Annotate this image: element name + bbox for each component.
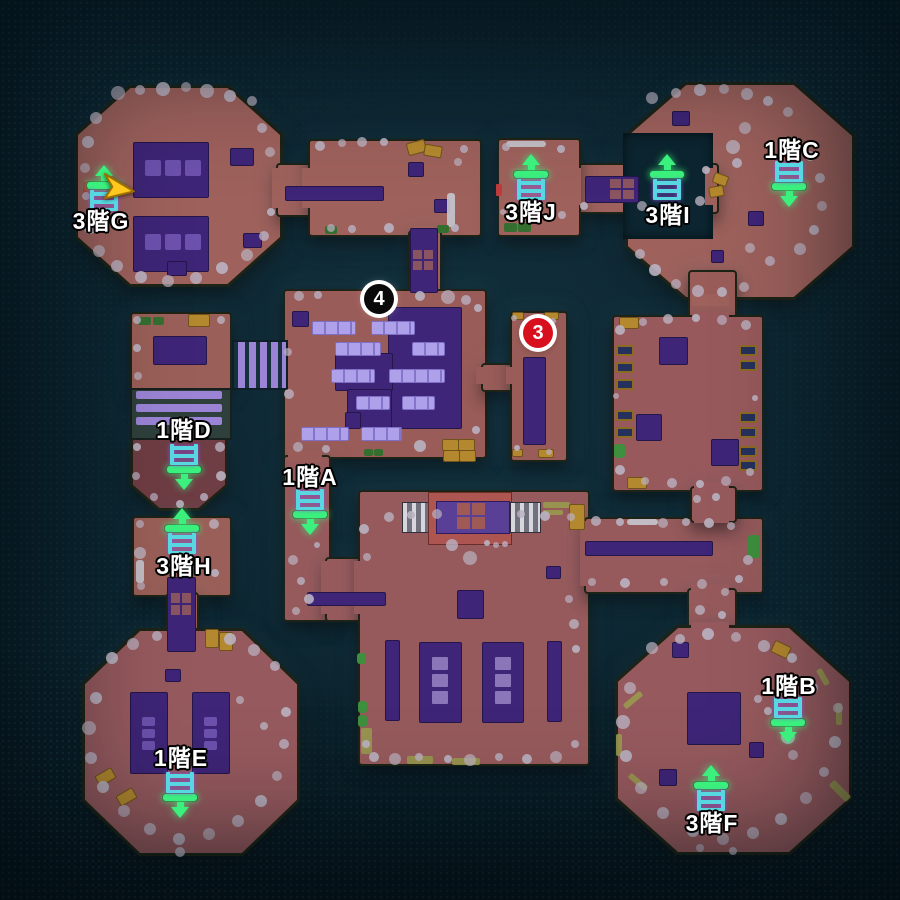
ladder-platform: [165, 525, 199, 532]
furniture-lav: [312, 321, 356, 335]
furniture-win2: [457, 503, 470, 515]
map-decor: [173, 508, 191, 519]
furniture-pu: [408, 162, 424, 177]
pebble: [463, 551, 477, 565]
furniture-lav: [371, 321, 415, 335]
doorway-patch: [506, 367, 518, 384]
pebble: [137, 582, 145, 590]
furniture-pl2: [495, 657, 511, 670]
pebble: [407, 511, 415, 519]
floor-label: 3階I: [645, 196, 690, 230]
pebble: [267, 208, 275, 216]
pebble: [572, 645, 580, 653]
pebble: [150, 493, 158, 501]
furniture-pu: [672, 111, 690, 126]
pebble: [415, 291, 425, 301]
floor-label: 3階J: [505, 193, 557, 227]
furniture-pl: [185, 234, 201, 250]
pebble: [446, 539, 458, 551]
furniture-pl: [145, 234, 161, 250]
furniture-lav: [361, 427, 402, 441]
doorway-patch: [354, 561, 364, 614]
furniture-pu: [165, 669, 181, 682]
floor-label: 1階E: [154, 739, 208, 773]
pebble: [591, 516, 601, 526]
furniture-pl2: [432, 691, 448, 704]
furniture-grn: [358, 701, 367, 713]
pebble: [746, 468, 754, 476]
furniture-win2: [472, 517, 485, 529]
furniture-bed: [616, 345, 634, 356]
floor-label: 3階F: [686, 804, 739, 838]
map-decor: [179, 519, 186, 524]
pebble: [380, 138, 388, 146]
pebble: [175, 847, 185, 857]
pebble: [118, 805, 130, 817]
doorway-patch: [571, 168, 581, 205]
pebble: [314, 542, 320, 548]
pebble: [451, 224, 459, 232]
floor-label: 1階B: [761, 667, 816, 701]
pebble: [783, 107, 793, 117]
floor-label: 1階D: [156, 411, 211, 445]
pebble: [721, 588, 729, 596]
map-decor: [702, 765, 720, 776]
pebble: [209, 519, 219, 529]
furniture-bed: [616, 427, 634, 438]
pebble: [454, 158, 462, 166]
doorway-patch: [476, 367, 488, 384]
pebble: [327, 224, 335, 232]
furniture-pu: [385, 640, 400, 721]
pebble: [550, 751, 562, 763]
pebble: [111, 86, 125, 100]
pebble: [758, 640, 770, 652]
pebble: [136, 520, 144, 528]
furniture-pu: [749, 742, 764, 758]
pebble: [414, 440, 426, 452]
pebble: [704, 518, 714, 528]
pebble: [702, 628, 714, 640]
ladder-platform: [650, 171, 684, 178]
pebble: [132, 472, 140, 480]
furniture-win: [623, 179, 634, 188]
pebble: [464, 754, 476, 766]
arrow-up-icon: [173, 508, 191, 524]
pebble: [272, 771, 282, 781]
pebble: [717, 315, 727, 325]
arrow-down-icon: [780, 191, 798, 207]
pebble: [90, 692, 102, 704]
furniture-lav: [301, 427, 349, 441]
furniture-wht: [447, 193, 455, 227]
pebble: [502, 541, 508, 547]
furniture-bed: [616, 362, 634, 373]
furniture-wht: [627, 519, 658, 525]
furniture-pu: [285, 186, 384, 201]
pebble: [502, 143, 510, 151]
furniture-pu: [585, 541, 713, 556]
pebble: [682, 518, 690, 526]
pebble: [624, 682, 636, 694]
numbered-marker: 3: [523, 318, 553, 348]
furniture-grn: [357, 653, 366, 664]
pebble: [216, 262, 228, 274]
pebble: [259, 231, 269, 241]
ladder-platform: [772, 183, 806, 190]
pebble: [615, 465, 625, 475]
map-decor: [785, 727, 792, 732]
pebble: [359, 524, 369, 534]
pebble: [743, 555, 753, 565]
furniture-gold: [443, 450, 460, 462]
dungeon-map[interactable]: 3階G3階J3階I1階C1階D1階A3階H1階E1階B3階F43: [0, 0, 900, 900]
ladder-down-icon: [292, 489, 328, 535]
pebble: [741, 88, 753, 100]
pebble: [702, 166, 710, 174]
pebble: [152, 631, 162, 641]
furniture-win: [424, 250, 433, 259]
furniture-pl2: [432, 657, 448, 670]
pebble: [257, 123, 267, 133]
pebble: [546, 449, 552, 455]
furniture-dgrn: [374, 449, 383, 456]
furniture-wht: [136, 560, 144, 583]
pebble: [635, 782, 647, 794]
furniture-lav: [402, 396, 435, 410]
furniture-win: [623, 190, 634, 199]
ladder-down-icon: [162, 772, 198, 818]
pebble: [216, 471, 226, 481]
furniture-win2: [457, 517, 470, 529]
pebble: [444, 755, 452, 763]
pebble: [514, 445, 520, 451]
pebble: [550, 318, 556, 324]
pebble: [635, 249, 645, 259]
pebble: [173, 833, 185, 845]
pebble: [787, 653, 797, 663]
pebble: [493, 542, 499, 548]
furniture-bed: [739, 427, 757, 438]
map-decor: [175, 479, 193, 490]
pebble: [82, 136, 94, 148]
pebble: [571, 740, 579, 748]
pebble: [241, 249, 253, 261]
pebble: [692, 314, 700, 322]
floor-label: 1階C: [764, 131, 819, 165]
ladder-platform: [771, 719, 805, 726]
pebble: [362, 740, 370, 748]
furniture-str: [136, 391, 222, 399]
map-decor: [779, 732, 797, 743]
pebble: [322, 445, 330, 453]
furniture-win: [171, 605, 180, 615]
furniture-bed: [739, 360, 757, 371]
pebble: [763, 96, 773, 106]
pebble: [217, 316, 225, 324]
pebble: [389, 753, 401, 765]
furniture-pu: [307, 592, 386, 606]
arrow-up-icon: [658, 154, 676, 170]
ladder-rungs: [170, 444, 198, 465]
pebble: [472, 426, 480, 434]
pebble: [641, 477, 649, 485]
pebble: [265, 147, 275, 157]
pebble: [649, 264, 661, 276]
pebble: [255, 795, 267, 807]
pebble: [461, 295, 471, 305]
pebble: [369, 752, 379, 762]
furniture-pl: [165, 234, 181, 250]
pebble: [292, 607, 300, 615]
pebble: [284, 389, 294, 399]
pebble: [232, 815, 244, 827]
pebble: [727, 522, 735, 530]
pebble: [800, 792, 812, 804]
pebble: [297, 577, 305, 585]
pebble: [288, 555, 298, 565]
pebble: [580, 202, 588, 210]
pebble: [567, 513, 575, 521]
pebble: [90, 112, 102, 124]
pebble: [697, 579, 707, 589]
furniture-win: [413, 261, 422, 270]
furniture-lav: [331, 369, 375, 383]
furniture-pu: [230, 148, 254, 166]
furniture-pu: [672, 642, 689, 658]
pebble: [135, 271, 147, 283]
furniture-pl: [204, 729, 217, 738]
map-decor: [171, 807, 189, 818]
furniture-pu: [523, 357, 546, 445]
pebble: [293, 442, 303, 452]
pebble: [304, 594, 314, 604]
furniture-lav: [335, 342, 381, 356]
pebble: [357, 137, 367, 147]
ladder-platform: [167, 466, 201, 473]
furniture-pu: [659, 769, 677, 786]
pebble: [181, 82, 191, 92]
pebble: [739, 282, 749, 292]
furniture-pl: [142, 717, 155, 726]
pebble: [540, 511, 550, 521]
furniture-redm: [496, 184, 502, 196]
pebble: [557, 145, 565, 153]
pebble: [133, 316, 141, 324]
doorway-patch: [272, 168, 284, 208]
pebble: [833, 703, 843, 713]
pebble: [314, 291, 322, 299]
pebble: [111, 260, 123, 272]
pebble: [729, 847, 737, 855]
map-decor: [528, 165, 535, 170]
pebble: [474, 304, 482, 312]
ladder-down-icon: [771, 161, 807, 207]
pebble: [133, 443, 141, 451]
pebble: [200, 84, 214, 98]
furniture-win: [182, 605, 191, 615]
pebble: [281, 707, 291, 717]
map-decor: [708, 776, 715, 781]
pebble: [745, 243, 755, 253]
pebble: [719, 84, 729, 94]
pebble: [660, 578, 668, 586]
furniture-bed: [739, 446, 757, 457]
furniture-pl: [185, 160, 201, 176]
pebble: [93, 245, 105, 257]
map-decor: [301, 524, 319, 535]
furniture-win: [424, 261, 433, 270]
furniture-win: [413, 250, 422, 259]
arrow-up-icon: [522, 154, 540, 170]
ladder-platform: [293, 511, 327, 518]
ladder-platform: [163, 794, 197, 801]
pebble: [135, 85, 145, 95]
pebble: [739, 122, 751, 134]
pebble: [747, 827, 759, 839]
pebble: [735, 575, 743, 583]
furniture-gold: [188, 314, 210, 327]
pebble: [106, 652, 118, 664]
furniture-gold: [205, 629, 219, 648]
pebble: [203, 828, 215, 840]
pebble: [717, 287, 727, 297]
pebble: [620, 578, 630, 588]
floor-label: 1階A: [282, 458, 337, 492]
ladder-down-icon: [166, 444, 202, 490]
furniture-grn: [358, 715, 367, 727]
pebble: [224, 90, 236, 102]
pebble: [718, 611, 726, 619]
pebble: [162, 275, 174, 287]
furniture-lav: [356, 396, 390, 410]
furniture-win: [171, 593, 180, 603]
pebble: [215, 442, 225, 452]
pebble: [284, 348, 292, 356]
pebble: [646, 642, 658, 654]
pebble: [338, 139, 346, 147]
furniture-win: [610, 190, 621, 199]
furniture-dgrn: [364, 449, 373, 456]
furniture-pu: [687, 692, 741, 745]
pebble: [144, 823, 156, 835]
pebble: [517, 510, 525, 518]
pebble: [694, 84, 706, 96]
ladder-platform: [514, 171, 548, 178]
furniture-pu: [636, 414, 662, 441]
furniture-pu: [748, 211, 764, 226]
pebble: [696, 844, 704, 852]
pebble: [432, 509, 442, 519]
pebble: [134, 547, 146, 559]
bridge-west: [232, 340, 288, 390]
map-decor: [786, 191, 793, 196]
pebble: [696, 480, 704, 488]
pebble: [294, 291, 304, 301]
pebble: [134, 372, 142, 380]
furniture-pl: [142, 729, 155, 738]
map-decor: [522, 154, 540, 165]
pebble: [156, 82, 170, 96]
ladder-rungs: [166, 772, 194, 793]
pebble: [819, 767, 829, 777]
map-decor: [177, 802, 184, 807]
pebble: [815, 173, 825, 183]
map-decor: [181, 474, 188, 479]
arrow-down-icon: [171, 802, 189, 818]
pebble: [565, 595, 573, 603]
pebble: [658, 518, 668, 528]
furniture-bed: [616, 410, 634, 421]
furniture-pu: [547, 641, 562, 722]
pebble: [133, 344, 141, 352]
pebble: [692, 285, 704, 297]
pebble: [712, 493, 720, 501]
pebble: [639, 318, 647, 326]
pebble: [190, 272, 202, 284]
pebble: [247, 96, 257, 106]
map-decor: [658, 154, 676, 165]
pebble: [741, 320, 751, 330]
ladder-up-icon: [649, 154, 685, 200]
pebble: [616, 715, 630, 729]
pebble: [384, 223, 394, 233]
pebble: [211, 569, 219, 577]
pebble: [817, 201, 827, 211]
pebble: [775, 813, 787, 825]
furniture-khaki: [543, 502, 570, 508]
pebble: [695, 196, 705, 206]
pebble: [765, 256, 775, 266]
pebble: [363, 553, 371, 561]
pebble: [663, 314, 673, 324]
pebble: [200, 493, 208, 501]
pebble: [511, 315, 517, 321]
furniture-pu: [153, 336, 207, 365]
pebble: [460, 145, 468, 153]
furniture-pl: [204, 717, 217, 726]
furniture-pl: [145, 160, 161, 176]
pebble: [616, 518, 624, 526]
arrow-down-icon: [301, 519, 319, 535]
pebble: [809, 225, 819, 235]
furniture-pl2: [495, 674, 511, 687]
pebble: [270, 661, 280, 671]
furniture-wht: [506, 141, 546, 147]
map-decor: [664, 165, 671, 170]
pebble: [248, 644, 260, 656]
pebble: [97, 781, 109, 793]
furniture-lav: [412, 342, 445, 356]
furniture-pl2: [495, 691, 511, 704]
pebble: [671, 279, 681, 289]
arrow-down-icon: [779, 727, 797, 743]
furniture-pl: [165, 160, 181, 176]
pebble: [693, 495, 701, 503]
pebble: [85, 752, 97, 764]
pebble: [615, 325, 625, 335]
arrow-down-icon: [175, 474, 193, 490]
furniture-pu: [711, 250, 724, 263]
pebble: [788, 750, 798, 760]
pebble: [127, 638, 139, 650]
pebble: [613, 393, 619, 399]
furniture-gold: [459, 450, 476, 462]
ladder-down-icon: [770, 697, 806, 743]
pebble: [646, 92, 658, 104]
pebble: [260, 722, 268, 730]
furniture-bed: [739, 412, 757, 423]
